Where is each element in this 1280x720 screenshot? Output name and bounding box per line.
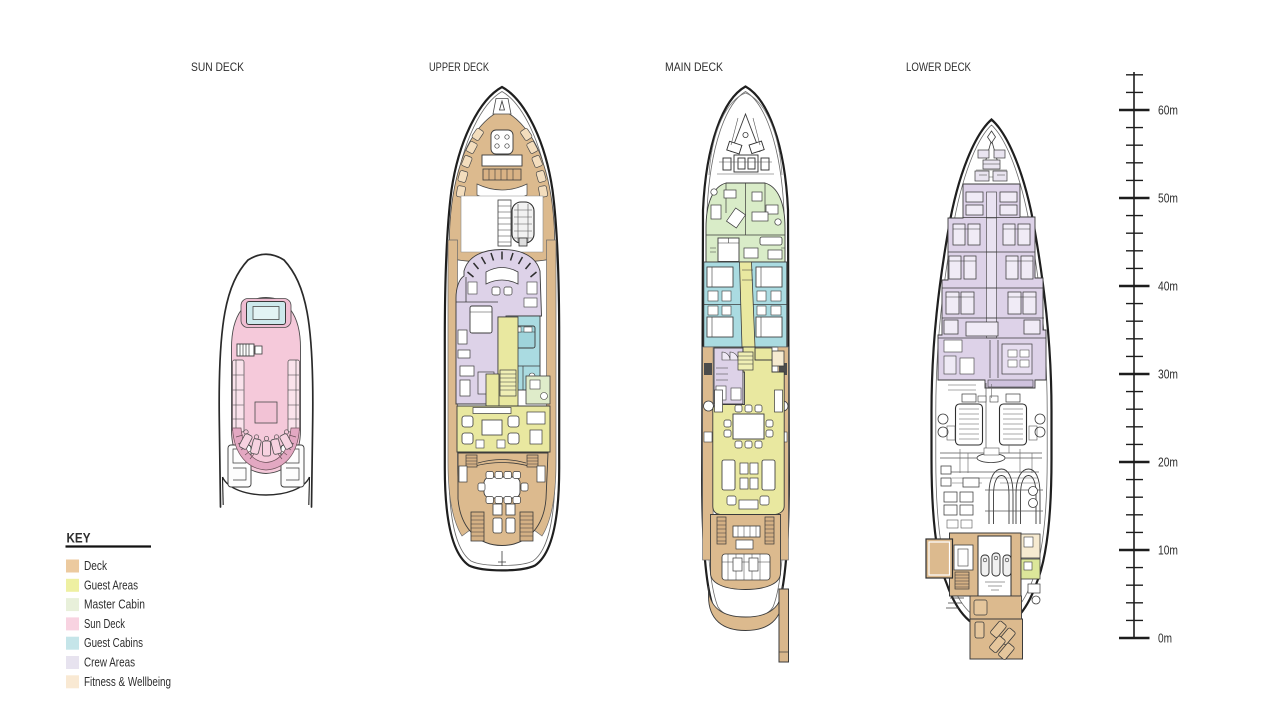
- svg-text:Guest Cabins: Guest Cabins: [84, 636, 143, 650]
- svg-text:50m: 50m: [1158, 191, 1178, 206]
- svg-text:UPPER DECK: UPPER DECK: [429, 60, 489, 74]
- svg-text:Crew Areas: Crew Areas: [84, 656, 135, 670]
- svg-text:10m: 10m: [1158, 543, 1178, 558]
- svg-text:SUN DECK: SUN DECK: [191, 60, 244, 74]
- svg-text:Master Cabin: Master Cabin: [84, 598, 145, 612]
- svg-text:Sun Deck: Sun Deck: [84, 617, 126, 631]
- svg-text:MAIN DECK: MAIN DECK: [665, 60, 723, 74]
- svg-text:Deck: Deck: [84, 559, 108, 573]
- svg-text:40m: 40m: [1158, 279, 1178, 294]
- svg-text:KEY: KEY: [67, 530, 92, 546]
- svg-text:20m: 20m: [1158, 455, 1178, 470]
- svg-text:LOWER DECK: LOWER DECK: [906, 60, 971, 74]
- svg-text:30m: 30m: [1158, 367, 1178, 382]
- svg-text:Fitness & Wellbeing: Fitness & Wellbeing: [84, 675, 171, 689]
- svg-text:60m: 60m: [1158, 103, 1178, 118]
- svg-text:Guest Areas: Guest Areas: [84, 578, 138, 592]
- svg-text:0m: 0m: [1158, 631, 1172, 646]
